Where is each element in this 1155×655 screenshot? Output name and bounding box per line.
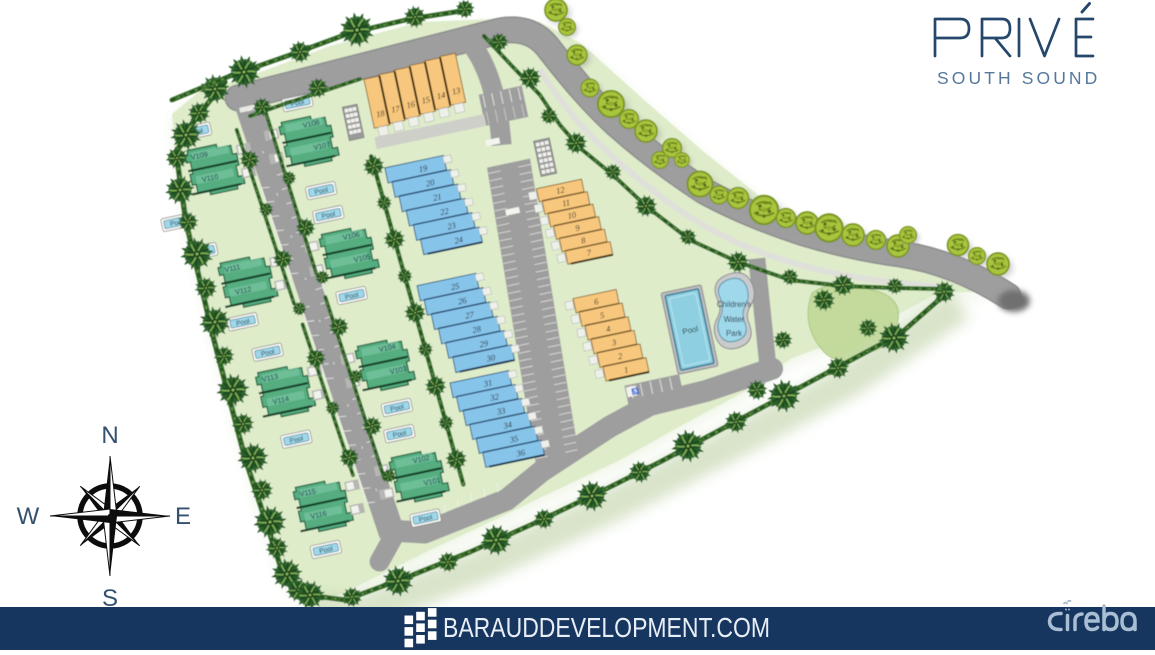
svg-text:N: N (101, 422, 118, 449)
svg-text:BARAUDDEVELOPMENT.COM: BARAUDDEVELOPMENT.COM (443, 612, 770, 643)
svg-text:W: W (17, 503, 40, 530)
svg-text:Water: Water (724, 315, 745, 324)
svg-text:Park: Park (726, 329, 742, 338)
svg-text:Children's: Children's (717, 300, 752, 309)
svg-text:E: E (175, 503, 191, 530)
svg-text:SOUTH SOUND: SOUTH SOUND (937, 68, 1100, 88)
